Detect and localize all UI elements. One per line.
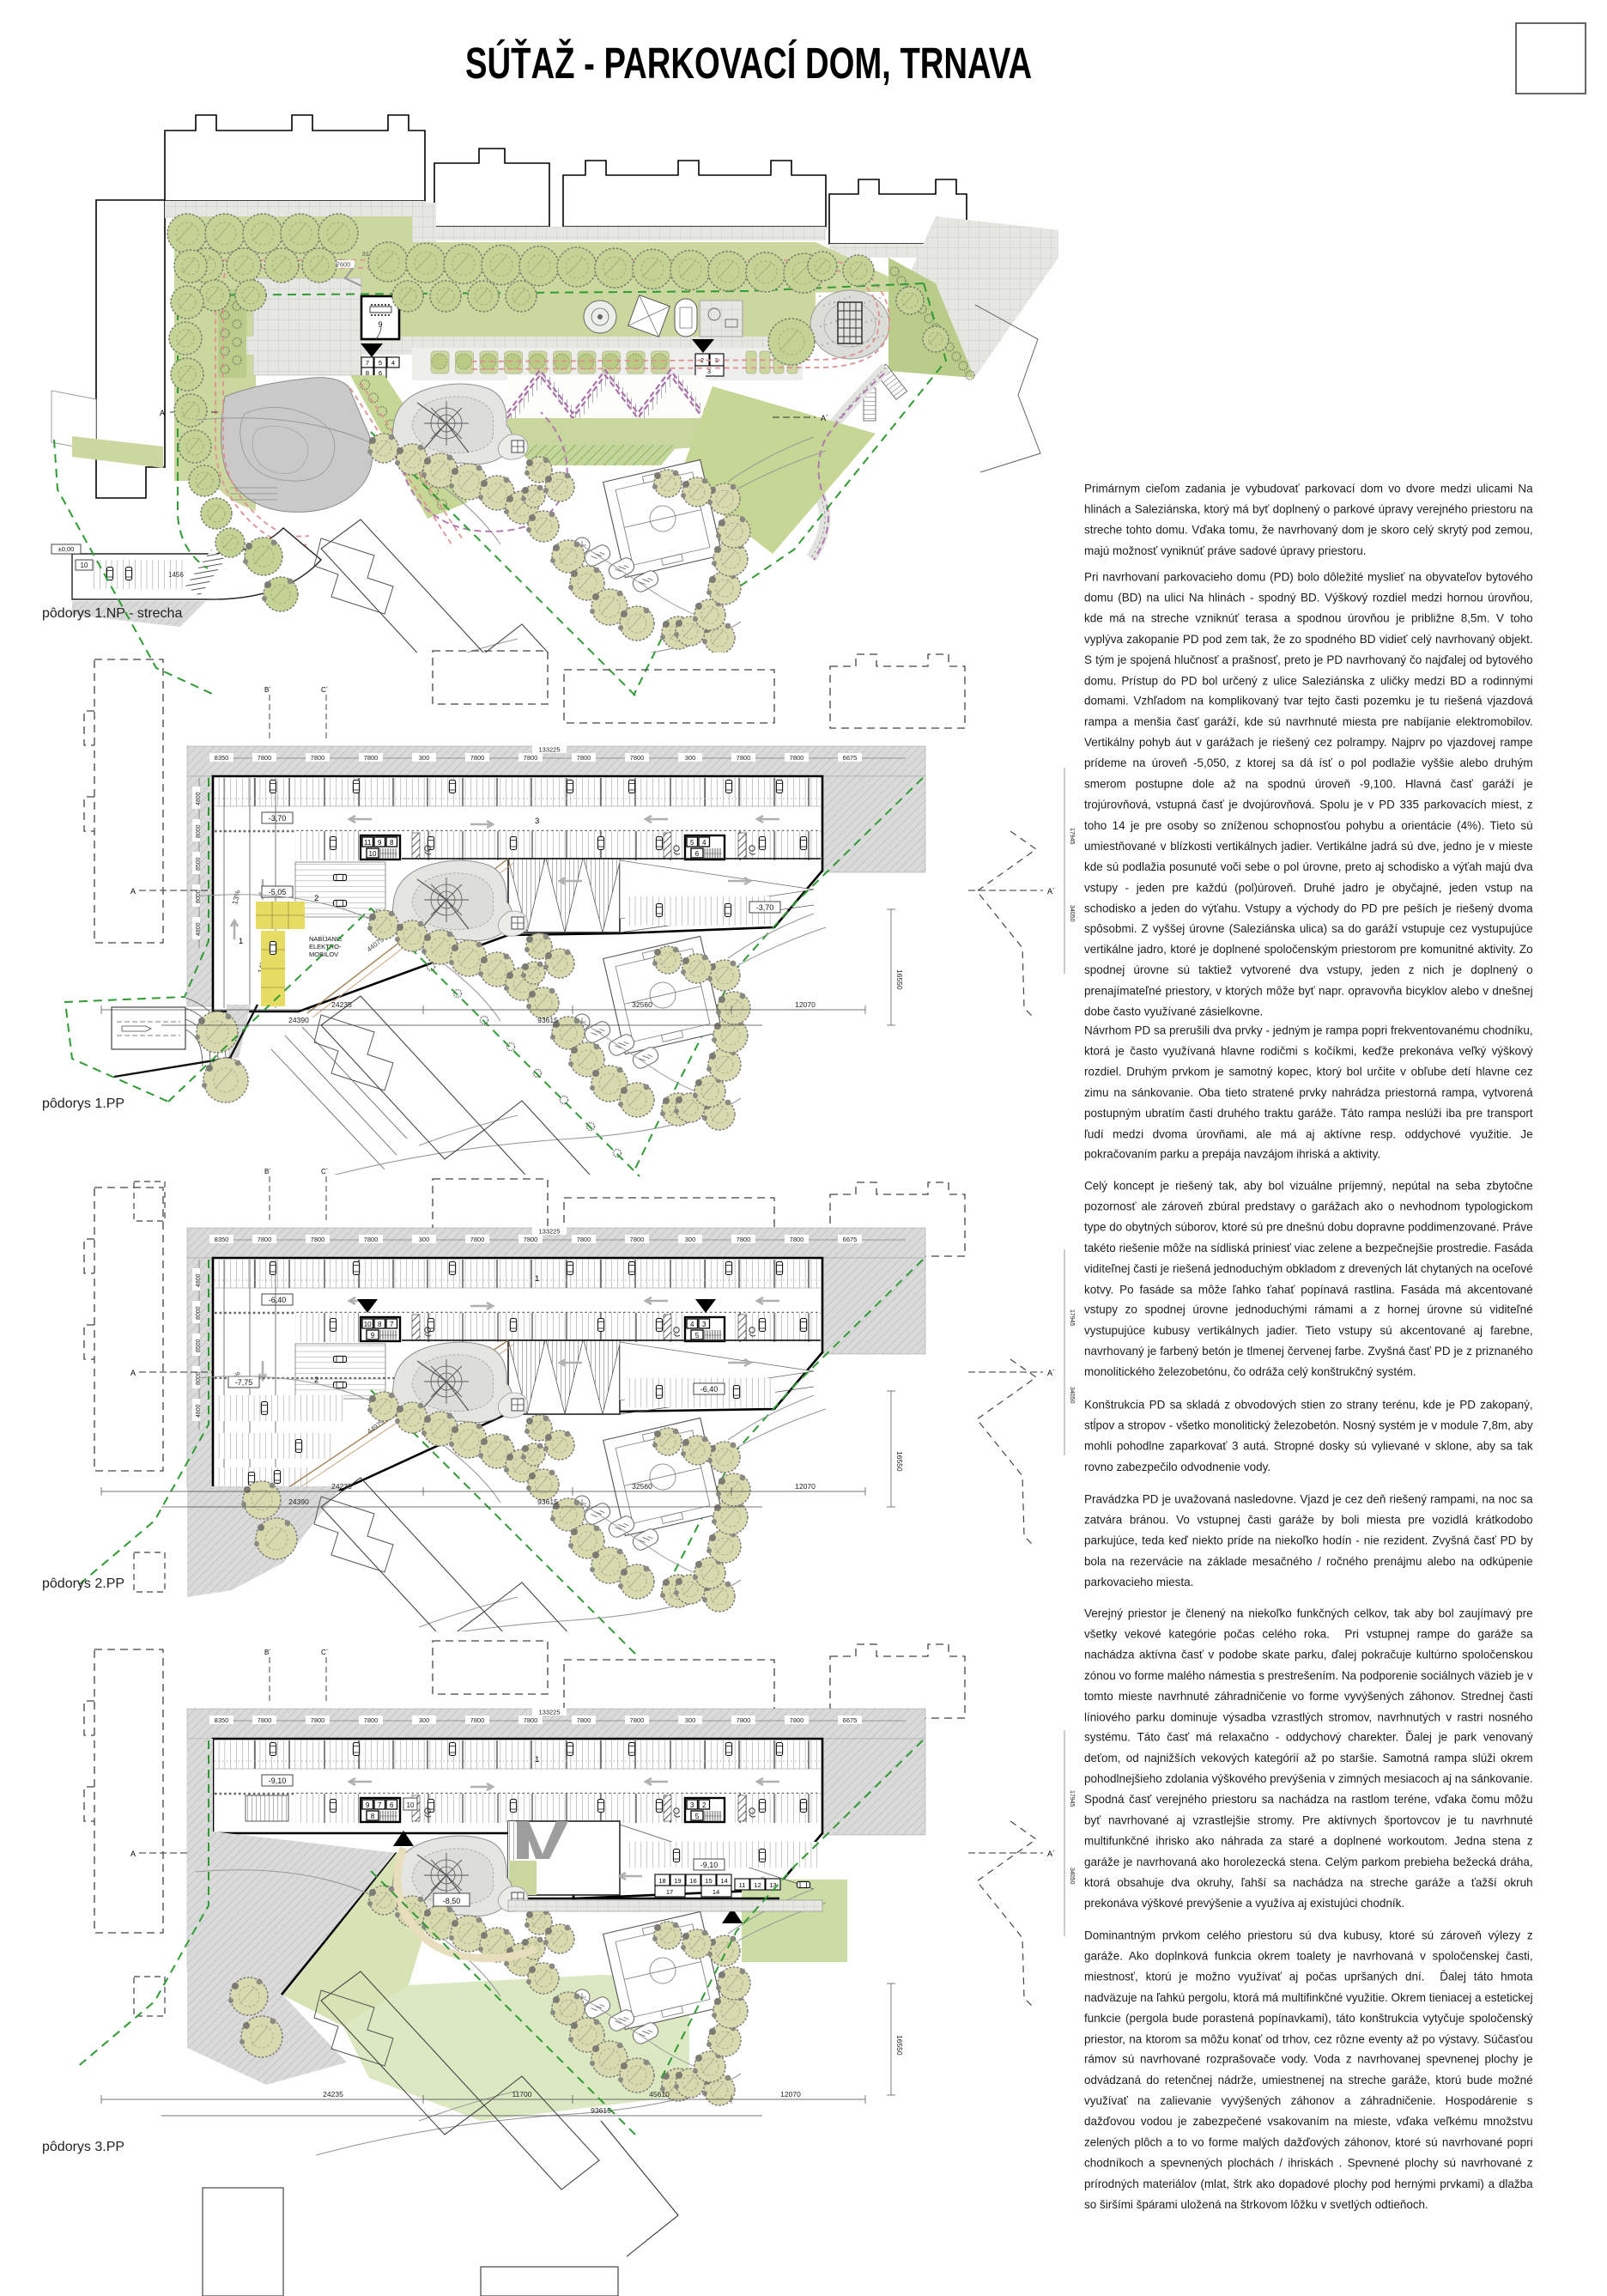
svg-text:-7,75: -7,75 (235, 1378, 253, 1387)
svg-text:4800: 4800 (196, 922, 202, 936)
svg-text:24390: 24390 (288, 1497, 309, 1506)
svg-text:12070: 12070 (795, 1000, 816, 1009)
svg-text:4800: 4800 (196, 1273, 202, 1287)
svg-text:93615: 93615 (537, 1497, 558, 1506)
svg-text:93615: 93615 (537, 1016, 558, 1024)
svg-text:7800: 7800 (470, 1716, 485, 1724)
svg-text:93615: 93615 (591, 2106, 611, 2115)
svg-text:B´: B´ (264, 1649, 271, 1656)
svg-text:7800: 7800 (630, 754, 645, 762)
svg-text:8000: 8000 (196, 1306, 202, 1320)
svg-text:15: 15 (705, 1877, 712, 1885)
svg-text:18: 18 (658, 1877, 665, 1885)
svg-text:10: 10 (364, 1321, 372, 1328)
svg-text:17945: 17945 (1069, 828, 1075, 845)
svg-text:7800: 7800 (311, 754, 325, 762)
svg-text:A: A (160, 409, 165, 417)
svg-text:11: 11 (739, 1881, 746, 1889)
svg-text:7800: 7800 (524, 754, 538, 762)
svg-text:17945: 17945 (1069, 1790, 1075, 1807)
svg-text:C´: C´ (321, 686, 328, 694)
svg-text:B´: B´ (264, 686, 271, 694)
svg-text:7800: 7800 (737, 754, 751, 762)
svg-text:24235: 24235 (331, 1482, 352, 1491)
svg-text:C´: C´ (321, 1168, 328, 1175)
svg-text:8: 8 (378, 1321, 382, 1328)
svg-text:9: 9 (378, 839, 382, 847)
svg-text:7800: 7800 (790, 1716, 804, 1724)
svg-text:7800: 7800 (790, 754, 804, 762)
svg-text:34050: 34050 (1069, 905, 1075, 922)
svg-text:12070: 12070 (795, 1482, 816, 1491)
svg-text:300: 300 (685, 1236, 696, 1243)
svg-text:C´: C´ (321, 1649, 328, 1656)
svg-text:A: A (130, 1369, 136, 1377)
svg-text:A´: A´ (1047, 1369, 1055, 1377)
svg-text:-8,50: -8,50 (443, 1897, 461, 1905)
svg-text:7800: 7800 (364, 1236, 379, 1243)
svg-text:2: 2 (702, 1801, 706, 1809)
svg-text:ELEKTRO-: ELEKTRO- (309, 943, 342, 951)
svg-text:16: 16 (689, 1877, 696, 1885)
svg-text:14: 14 (720, 1877, 727, 1885)
svg-text:-6,40: -6,40 (269, 1296, 287, 1304)
svg-text:7800: 7800 (577, 754, 591, 762)
svg-text:10: 10 (81, 562, 88, 569)
svg-text:3: 3 (690, 1801, 694, 1809)
svg-text:1: 1 (535, 1755, 539, 1765)
svg-text:7800: 7800 (364, 754, 379, 762)
svg-text:24390: 24390 (288, 1016, 309, 1024)
svg-text:NABÍJANIE: NABÍJANIE (309, 935, 343, 943)
svg-text:24235: 24235 (331, 1000, 352, 1009)
svg-text:7800: 7800 (790, 1236, 804, 1243)
svg-text:300: 300 (685, 1716, 696, 1724)
svg-text:5: 5 (695, 1813, 700, 1820)
svg-text:16550: 16550 (895, 969, 904, 990)
svg-text:5: 5 (690, 839, 694, 847)
svg-text:4800: 4800 (196, 1404, 202, 1418)
svg-text:300: 300 (685, 754, 696, 762)
svg-text:6: 6 (695, 850, 700, 858)
svg-text:MOBILOV: MOBILOV (309, 951, 338, 958)
svg-text:8: 8 (390, 839, 394, 847)
svg-text:±0,00: ±0,00 (58, 545, 75, 553)
svg-text:32560: 32560 (632, 1000, 652, 1009)
svg-text:17945: 17945 (1069, 1309, 1075, 1327)
svg-text:7800: 7800 (470, 1236, 485, 1243)
svg-text:9: 9 (378, 320, 382, 329)
svg-text:7800: 7800 (258, 754, 272, 762)
svg-text:7800: 7800 (258, 1236, 272, 1243)
svg-text:1: 1 (239, 937, 243, 946)
svg-text:7: 7 (366, 359, 369, 367)
svg-text:34050: 34050 (1069, 1868, 1075, 1885)
svg-text:16550: 16550 (895, 1451, 904, 1472)
svg-text:17: 17 (666, 1888, 673, 1896)
svg-text:133225: 133225 (538, 746, 560, 754)
svg-text:7800: 7800 (630, 1236, 645, 1243)
svg-text:300: 300 (419, 1236, 430, 1243)
svg-text:7800: 7800 (737, 1236, 751, 1243)
svg-text:5: 5 (695, 1332, 700, 1339)
svg-text:6675: 6675 (843, 1716, 858, 1724)
svg-text:4: 4 (391, 359, 395, 367)
svg-text:11: 11 (364, 839, 372, 847)
svg-text:3: 3 (702, 1321, 706, 1328)
svg-text:-6,40: -6,40 (700, 1385, 719, 1394)
svg-text:7800: 7800 (524, 1236, 538, 1243)
svg-text:19: 19 (674, 1877, 681, 1885)
svg-text:A´: A´ (821, 414, 828, 422)
svg-text:10: 10 (369, 850, 377, 858)
svg-text:7: 7 (378, 1801, 382, 1809)
svg-text:8000: 8000 (196, 824, 202, 838)
svg-text:5: 5 (379, 359, 382, 367)
svg-text:24235: 24235 (323, 2090, 343, 2099)
svg-text:7800: 7800 (470, 754, 485, 762)
svg-text:300: 300 (419, 754, 430, 762)
svg-text:133225: 133225 (538, 1709, 560, 1716)
svg-text:14: 14 (713, 1888, 719, 1896)
svg-text:12070: 12070 (780, 2090, 801, 2099)
svg-text:7800: 7800 (364, 1716, 379, 1724)
svg-text:12: 12 (754, 1881, 761, 1889)
svg-text:6675: 6675 (843, 754, 858, 762)
svg-text:16550: 16550 (895, 2035, 904, 2056)
svg-text:-5,05: -5,05 (269, 888, 287, 896)
svg-text:7600: 7600 (337, 261, 351, 269)
svg-text:8: 8 (371, 1813, 375, 1820)
svg-text:7800: 7800 (577, 1716, 591, 1724)
svg-text:34050: 34050 (1069, 1387, 1075, 1404)
svg-text:8350: 8350 (215, 754, 229, 762)
svg-text:A: A (130, 887, 136, 896)
svg-text:8350: 8350 (215, 1236, 229, 1243)
svg-text:7800: 7800 (630, 1716, 645, 1724)
svg-text:300: 300 (419, 1716, 430, 1724)
svg-text:7: 7 (390, 1321, 394, 1328)
svg-text:9: 9 (371, 1332, 375, 1339)
svg-text:7800: 7800 (737, 1716, 751, 1724)
svg-text:11700: 11700 (512, 2090, 531, 2099)
svg-text:-3,70: -3,70 (756, 903, 774, 912)
svg-text:A´: A´ (1047, 887, 1055, 896)
svg-text:7800: 7800 (524, 1716, 538, 1724)
svg-text:8500: 8500 (196, 857, 202, 871)
svg-text:133225: 133225 (538, 1228, 560, 1236)
svg-text:9: 9 (366, 1801, 370, 1809)
svg-text:-9,10: -9,10 (269, 1777, 287, 1785)
svg-text:-3,70: -3,70 (269, 814, 287, 823)
svg-text:7800: 7800 (311, 1236, 325, 1243)
svg-text:3: 3 (535, 817, 539, 826)
svg-text:6: 6 (390, 1801, 394, 1809)
svg-text:6675: 6675 (843, 1236, 858, 1243)
svg-text:7800: 7800 (577, 1236, 591, 1243)
svg-text:1456: 1456 (168, 571, 184, 579)
svg-text:8500: 8500 (196, 1339, 202, 1352)
svg-text:32560: 32560 (632, 1482, 652, 1491)
svg-text:4800: 4800 (196, 792, 202, 805)
svg-text:-9,10: -9,10 (700, 1861, 719, 1869)
svg-text:8350: 8350 (215, 1716, 229, 1724)
svg-text:1: 1 (535, 1274, 539, 1284)
svg-text:45610: 45610 (649, 2090, 670, 2099)
svg-text:A: A (130, 1850, 136, 1858)
svg-text:A´: A´ (1047, 1850, 1055, 1858)
svg-text:4: 4 (702, 839, 706, 847)
svg-text:10: 10 (407, 1801, 415, 1809)
svg-text:7800: 7800 (311, 1716, 325, 1724)
svg-text:4: 4 (690, 1321, 694, 1328)
svg-text:B´: B´ (264, 1168, 271, 1175)
svg-text:7800: 7800 (258, 1716, 272, 1724)
